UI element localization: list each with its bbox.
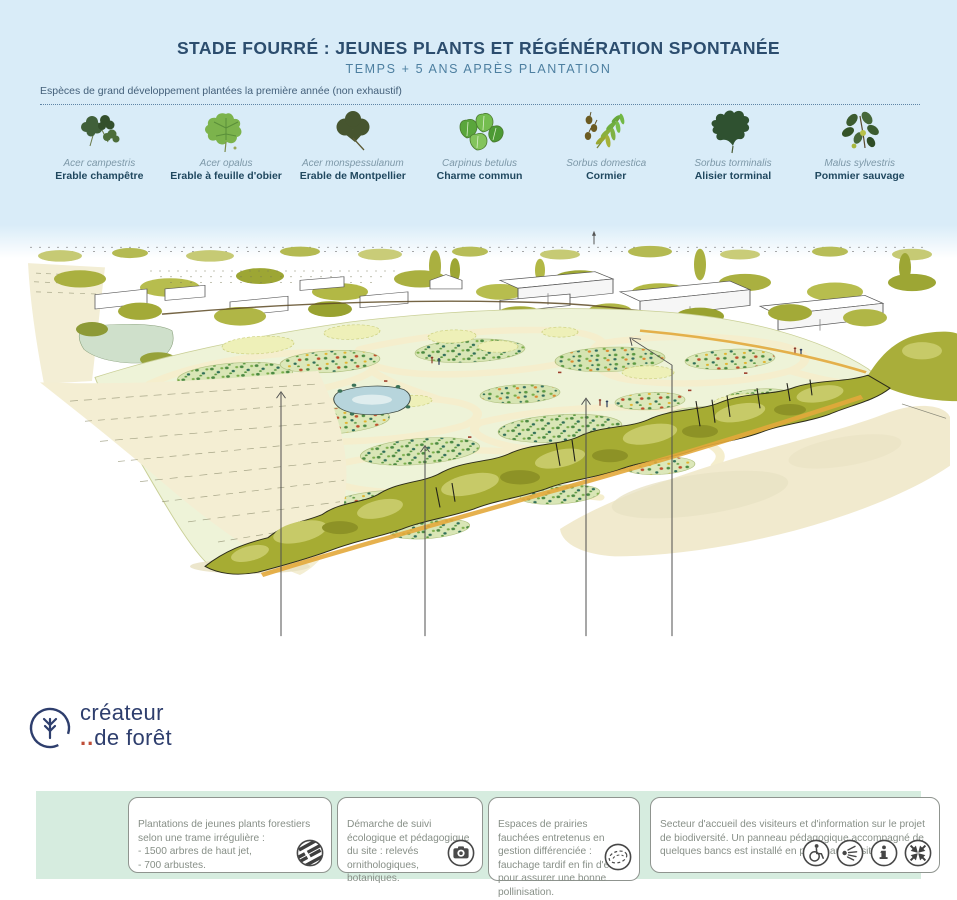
species-item: Sorbus domestica Cormier	[543, 106, 670, 183]
species-latin: Acer opalus	[163, 158, 290, 169]
logo-dots: ..	[80, 725, 94, 750]
species-common: Cormier	[543, 171, 670, 183]
page-title: STADE FOURRÉ : JEUNES PLANTS ET RÉGÉNÉRA…	[0, 38, 957, 59]
logo-wordmark: créateur ..de forêt	[80, 700, 172, 750]
callout-box-plantations: Plantations de jeunes plants forestiers …	[128, 797, 332, 873]
species-item: Acer campestris Erable champêtre	[36, 106, 163, 183]
page-subtitle: TEMPS + 5 ANS APRÈS PLANTATION	[0, 62, 957, 76]
species-item: Carpinus betulus Charme commun	[416, 106, 543, 183]
callout-box-accueil: Secteur d'accueil des visiteurs et d'inf…	[650, 797, 940, 873]
createur-de-foret-logo: créateur ..de forêt	[26, 700, 172, 754]
infographic-page: STADE FOURRÉ : JEUNES PLANTS ET RÉGÉNÉRA…	[0, 0, 957, 900]
info-icon	[869, 838, 899, 868]
callout-box-suivi: Démarche de suivi écologique et pédagogi…	[337, 797, 483, 873]
italian-maple-leaf-icon	[163, 106, 290, 154]
species-latin: Sorbus torminalis	[670, 158, 797, 169]
wheelchair-access-icon	[801, 838, 831, 868]
species-item: Sorbus torminalis Alisier torminal	[670, 106, 797, 183]
species-item: Acer opalus Erable à feuille d'obier	[163, 106, 290, 183]
service-tree-leaf-icon	[543, 106, 670, 154]
logo-line1: créateur	[80, 700, 164, 725]
logo-tree-icon	[26, 700, 76, 754]
species-row: Acer campestris Erable champêtre Acer op…	[36, 106, 923, 183]
mown-meadow-icon	[603, 842, 633, 872]
species-latin: Acer campestris	[36, 158, 163, 169]
callout-box-prairies: Espaces de prairies fauchées entretenus …	[488, 797, 640, 881]
crab-apple-leaves-icon	[796, 106, 923, 154]
species-common: Pommier sauvage	[796, 171, 923, 183]
species-common: Alisier torminal	[670, 171, 797, 183]
species-common: Charme commun	[416, 171, 543, 183]
species-latin: Sorbus domestica	[543, 158, 670, 169]
hornbeam-leaves-icon	[416, 106, 543, 154]
striped-planting-pattern-icon	[295, 838, 325, 868]
header: STADE FOURRÉ : JEUNES PLANTS ET RÉGÉNÉRA…	[0, 0, 957, 225]
species-common: Erable à feuille d'obier	[163, 171, 290, 183]
species-latin: Malus sylvestris	[796, 158, 923, 169]
wild-service-leaf-icon	[670, 106, 797, 154]
species-item: Malus sylvestris Pommier sauvage	[796, 106, 923, 183]
montpellier-maple-leaf-icon	[289, 106, 416, 154]
species-latin: Acer monspessulanum	[289, 158, 416, 169]
species-common: Erable de Montpellier	[289, 171, 416, 183]
field-maple-leaf-icon	[36, 106, 163, 154]
species-note: Espèces de grand développement plantées …	[40, 85, 920, 105]
species-common: Erable champêtre	[36, 171, 163, 183]
converging-arrows-icon	[903, 838, 933, 868]
callout-text: Espaces de prairies fauchées entretenus …	[498, 819, 618, 897]
species-item: Acer monspessulanum Erable de Montpellie…	[289, 106, 416, 183]
species-latin: Carpinus betulus	[416, 158, 543, 169]
callout-text: Plantations de jeunes plants forestiers …	[138, 819, 310, 870]
camera-icon	[446, 838, 476, 868]
logo-line2: de forêt	[94, 725, 172, 750]
viewpoint-rays-icon	[835, 838, 865, 868]
